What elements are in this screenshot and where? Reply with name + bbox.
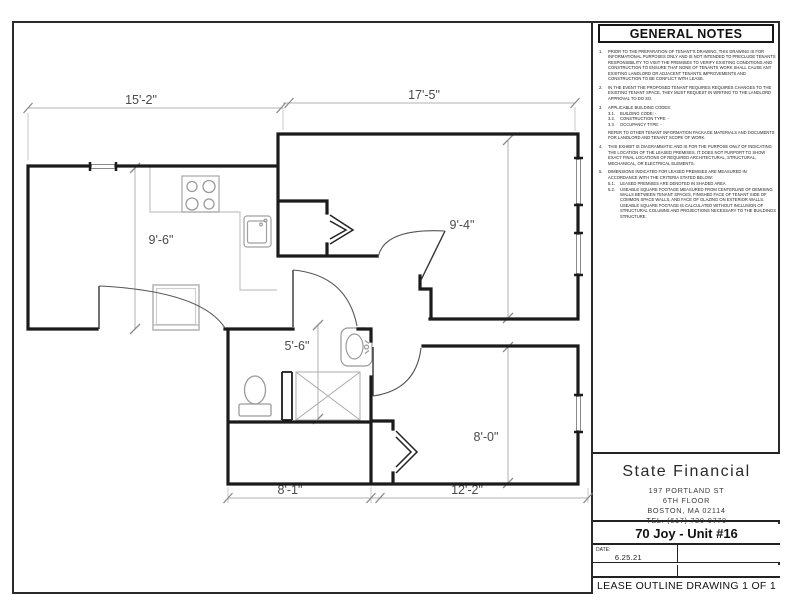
- date-value: 6.25.21: [615, 553, 642, 562]
- dim-bedroom: 9'-4": [450, 218, 475, 232]
- note-item: 4. THIS EXHIBIT IS DIAGRAMMATIC AND IS F…: [599, 144, 777, 166]
- toilet-icon: [239, 376, 271, 416]
- bedroom-closet-door: [330, 215, 353, 244]
- bathroom-sink-icon: [341, 328, 372, 366]
- note-subitems: 3.1.BUILDING CODE: - 3.2.CONSTRUCTION TY…: [608, 111, 777, 127]
- bedroom-door-arc: [378, 231, 445, 258]
- note-item: 3. APPLICABLE BUILDING CODES:: [599, 105, 777, 110]
- refrigerator-icon: [153, 285, 199, 330]
- stove-icon: [182, 176, 219, 212]
- company-block: State Financial 197 PORTLAND ST 6TH FLOO…: [593, 452, 780, 522]
- date-row-right-cell: [678, 545, 780, 562]
- bedroom-door-leaf: [421, 231, 445, 280]
- dimension-extension-lines: [28, 107, 588, 503]
- closet-bifold-doors: [330, 215, 417, 473]
- date-row: DATE: 6.25.21: [593, 545, 780, 563]
- project-title: 70 Joy - Unit #16: [593, 524, 780, 545]
- dim-bedroom2: 8'-0": [474, 430, 499, 444]
- door-leaves: [99, 231, 445, 396]
- company-name: State Financial: [593, 463, 780, 481]
- blank-cell: [593, 565, 678, 576]
- kitchen-counter: [150, 167, 277, 290]
- shower-partition-wall: [282, 372, 292, 420]
- note-subitems: 5.1.LEASED PREMISES ARE DENOTED IN SHADE…: [608, 181, 777, 219]
- date-label: DATE:: [596, 547, 610, 553]
- dim-top-left: 15'-2": [125, 93, 157, 107]
- dim-living-room: 9'-6": [149, 233, 174, 247]
- address-line: BOSTON, MA 02114: [593, 506, 780, 516]
- floor-plan: 15'-2" 17'-5" 9'-6" 9'-4" 5'-6" 8'-0" 8'…: [0, 0, 600, 612]
- shower-icon: [296, 372, 360, 420]
- note-item: 5. DIMENSIONS INDICATED FOR LEASED PREMI…: [599, 169, 777, 180]
- blank-row: [593, 565, 780, 578]
- general-notes-header: GENERAL NOTES: [598, 24, 774, 43]
- dimension-labels: 15'-2" 17'-5" 9'-6" 9'-4" 5'-6" 8'-0" 8'…: [125, 88, 498, 497]
- bathroom-door-arc: [293, 270, 357, 326]
- dim-bathroom: 5'-6": [285, 339, 310, 353]
- dimension-lines: [28, 103, 588, 498]
- bedroom2-door-arc: [373, 348, 421, 396]
- dimension-ticks: [24, 98, 593, 503]
- entry-door-arc: [99, 286, 225, 328]
- drawing-footer: LEASE OUTLINE DRAWING 1 OF 1: [593, 578, 780, 594]
- general-notes-title: GENERAL NOTES: [630, 27, 743, 41]
- general-notes-list: 1. PRIOR TO THE PREPARATION OF TENANT'S …: [599, 49, 777, 219]
- note-item: 2. IN THE EVENT THE PROPOSED TENANT REQU…: [599, 85, 777, 101]
- note-item: 1. PRIOR TO THE PREPARATION OF TENANT'S …: [599, 49, 777, 81]
- bedroom2-closet-door: [396, 431, 417, 473]
- window-caps: [90, 158, 583, 432]
- lease-outline-drawing-page: 15'-2" 17'-5" 9'-6" 9'-4" 5'-6" 8'-0" 8'…: [0, 0, 792, 612]
- kitchen-sink-icon: [244, 216, 271, 247]
- address-line: 197 PORTLAND ST: [593, 486, 780, 496]
- date-cell: DATE: 6.25.21: [593, 545, 678, 562]
- note-extra: REFER TO OTHER TENANT INFORMATION PACKAG…: [608, 130, 777, 141]
- dim-top-right: 17'-5": [408, 88, 440, 102]
- blank-row-right-cell: [678, 565, 780, 576]
- door-arcs: [99, 231, 445, 396]
- address-line: 6TH FLOOR: [593, 496, 780, 506]
- company-address: 197 PORTLAND ST 6TH FLOOR BOSTON, MA 021…: [593, 486, 780, 525]
